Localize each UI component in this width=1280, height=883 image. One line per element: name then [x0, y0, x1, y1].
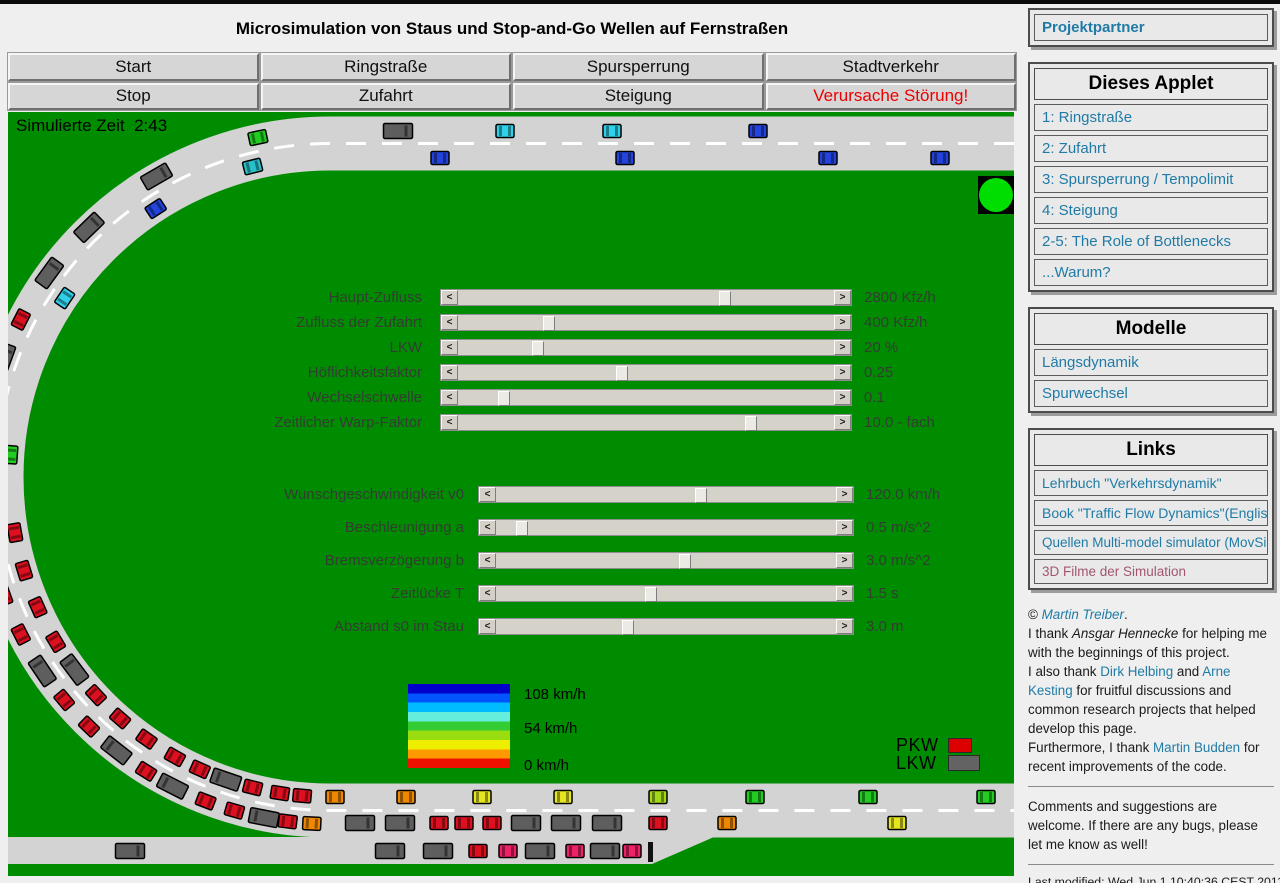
slider-thumb[interactable]	[695, 488, 707, 503]
truck-cab-line	[367, 818, 370, 829]
slider-h-flichkeitsfaktor[interactable]: <>	[440, 364, 852, 381]
slider-left-arrow[interactable]: <	[441, 365, 458, 380]
vehicle-body	[623, 845, 641, 858]
top-black-bar	[0, 0, 1280, 4]
slider-value: 0.1	[864, 389, 885, 406]
credit-text: .	[1124, 607, 1128, 622]
car-window	[822, 153, 825, 163]
slider-left-arrow[interactable]: <	[441, 340, 458, 355]
simulated-time-label: Simulierte Zeit 2:43	[16, 116, 167, 136]
button-start[interactable]: Start	[8, 53, 259, 81]
slider-left-arrow[interactable]: <	[441, 290, 458, 305]
truck-cab-line	[614, 818, 617, 829]
car-window	[989, 792, 992, 802]
slider-left-arrow[interactable]: <	[441, 315, 458, 330]
vehicle-car	[293, 789, 312, 804]
slider-row-haupt-zufluss: Haupt-Zufluss<>2800 Kfz/h	[8, 289, 936, 306]
credit-link-dirk-helbing[interactable]: Dirk Helbing	[1100, 664, 1173, 679]
slider-row-zufluss-der-zufahrt: Zufluss der Zufahrt<>400 Kfz/h	[8, 314, 936, 331]
car-window	[433, 818, 436, 828]
car-window	[730, 818, 733, 828]
car-window	[943, 153, 946, 163]
sidebar-link-quellen-multi-model-simulator-movsim[interactable]: Quellen Multi-model simulator (MovSim)	[1034, 530, 1268, 555]
vehicle-truck	[346, 816, 375, 831]
slider-row-zeitl-cke-t: Zeitlücke T<>1.5 s	[8, 585, 940, 602]
speed-legend-label: 108 km/h	[524, 686, 586, 703]
slider-wunschgeschwindigkeit-v0[interactable]: <>	[478, 486, 854, 503]
car-window	[626, 846, 629, 856]
car-window	[752, 126, 755, 136]
panel-links: LinksLehrbuch "Verkehrsdynamik"Book "Tra…	[1028, 428, 1274, 590]
car-window	[628, 153, 631, 163]
vehicle-body	[499, 845, 517, 858]
car-window	[499, 126, 502, 136]
sidebar-link-3d-filme-der-simulation[interactable]: 3D Filme der Simulation	[1034, 559, 1268, 584]
vehicle-car	[977, 791, 995, 804]
car-window	[615, 126, 618, 136]
car-window	[569, 846, 572, 856]
speed-gradient-box	[408, 684, 510, 768]
slider-right-arrow[interactable]: >	[836, 586, 853, 601]
vehicle-car	[326, 791, 344, 804]
slider-thumb[interactable]	[679, 554, 691, 569]
vehicle-car	[888, 817, 906, 830]
slider-right-arrow[interactable]: >	[836, 520, 853, 535]
car-window	[900, 818, 903, 828]
vehicle-body	[293, 789, 312, 804]
slider-thumb[interactable]	[532, 341, 544, 356]
vehicle-body	[270, 785, 290, 801]
car-window	[485, 792, 488, 802]
vehicle-truck	[386, 816, 415, 831]
slider-label: Wunschgeschwindigkeit v0	[8, 486, 464, 503]
button-spursperrung[interactable]: Spursperrung	[513, 53, 764, 81]
sidebar-link-2-zufahrt[interactable]: 2: Zufahrt	[1034, 135, 1268, 162]
vehicle-truck	[552, 816, 581, 831]
vehicle-body	[8, 445, 18, 464]
car-window	[606, 126, 609, 136]
vehicle-body	[591, 844, 620, 859]
slider-label: LKW	[8, 339, 422, 356]
car-window	[476, 792, 479, 802]
car-window	[862, 792, 865, 802]
page-title: Microsimulation von Staus und Stop-and-G…	[8, 19, 1016, 39]
vehicle-body	[469, 845, 487, 858]
slider-label: Höflichkeitsfaktor	[8, 364, 422, 381]
vehicle-body	[496, 125, 514, 138]
slider-label: Zufluss der Zufahrt	[8, 314, 422, 331]
slider-label: Zeitlicher Warp-Faktor	[8, 414, 422, 431]
slider-label: Bremsverzögerung b	[8, 552, 464, 569]
truck-cab-line	[137, 846, 140, 857]
slider-thumb[interactable]	[543, 316, 555, 331]
slider-right-arrow[interactable]: >	[834, 290, 851, 305]
slider-value: 20 %	[864, 339, 898, 356]
slider-right-arrow[interactable]: >	[834, 340, 851, 355]
vehicle-car	[649, 791, 667, 804]
vehicle-legend-row-lkw: LKW	[896, 754, 980, 772]
panel-dieses-applet: Dieses Applet1: Ringstraße2: Zufahrt3: S…	[1028, 62, 1274, 292]
slider-left-arrow[interactable]: <	[441, 390, 458, 405]
slider-left-arrow[interactable]: <	[479, 487, 496, 502]
vehicle-car	[473, 791, 491, 804]
car-window	[557, 792, 560, 802]
slider-right-arrow[interactable]: >	[836, 619, 853, 634]
credit-link-martin-budden[interactable]: Martin Budden	[1153, 740, 1240, 755]
slider-left-arrow[interactable]: <	[479, 553, 496, 568]
credit-text: I also thank	[1028, 664, 1100, 679]
vehicle-body	[593, 816, 622, 831]
vehicle-car	[431, 152, 449, 165]
panel-projektpartner: Projektpartner	[1028, 8, 1274, 47]
vehicle-body	[718, 817, 736, 830]
button-stop[interactable]: Stop	[8, 83, 259, 111]
car-window	[749, 792, 752, 802]
car-window	[443, 153, 446, 163]
vehicle-car	[746, 791, 764, 804]
vehicle-car	[603, 125, 621, 138]
vehicle-truck	[116, 844, 145, 859]
vehicle-body	[554, 791, 572, 804]
slider-group-traffic: Haupt-Zufluss<>2800 Kfz/hZufluss der Zuf…	[8, 289, 936, 439]
vehicle-body	[616, 152, 634, 165]
vehicle-body	[649, 791, 667, 804]
vehicle-legend-swatch	[948, 755, 980, 771]
sidebar-link-l-ngsdynamik[interactable]: Längsdynamik	[1034, 349, 1268, 376]
slider-row-wunschgeschwindigkeit-v0: Wunschgeschwindigkeit v0<>120.0 km/h	[8, 486, 940, 503]
vehicle-car	[270, 785, 290, 801]
vehicle-body	[483, 817, 501, 830]
vehicle-body	[526, 844, 555, 859]
car-window	[871, 792, 874, 802]
sidebar-panels: ProjektpartnerDieses Applet1: Ringstraße…	[1028, 8, 1274, 590]
vehicle-body	[859, 791, 877, 804]
vehicle-car	[566, 845, 584, 858]
vehicle-legend-label: LKW	[896, 753, 948, 774]
car-window	[508, 126, 511, 136]
slider-thumb[interactable]	[498, 391, 510, 406]
vehicle-body	[431, 152, 449, 165]
slider-value: 0.5 m/s^2	[866, 519, 931, 536]
slider-thumb[interactable]	[719, 291, 731, 306]
car-window	[306, 818, 310, 828]
car-window	[481, 846, 484, 856]
vehicle-body	[346, 816, 375, 831]
car-window	[511, 846, 514, 856]
vehicle-car	[455, 817, 473, 830]
car-window	[434, 153, 437, 163]
slider-right-arrow[interactable]: >	[834, 415, 851, 430]
slider-left-arrow[interactable]: <	[479, 586, 496, 601]
vehicle-body	[977, 791, 995, 804]
credit-text: Ansgar Hennecke	[1072, 626, 1178, 641]
control-button-grid: StartRingstraßeSpursperrungStadtverkehrS…	[8, 53, 1016, 110]
vehicle-car	[483, 817, 501, 830]
slider-bremsverz-gerung-b[interactable]: <>	[478, 552, 854, 569]
vehicle-car	[397, 791, 415, 804]
vehicle-body	[603, 125, 621, 138]
slider-lkw[interactable]: <>	[440, 339, 852, 356]
credit-text: and	[1173, 664, 1202, 679]
car-window	[467, 818, 470, 828]
slider-right-arrow[interactable]: >	[836, 553, 853, 568]
slider-left-arrow[interactable]: <	[479, 520, 496, 535]
panel-modelle: ModelleLängsdynamikSpurwechsel	[1028, 307, 1274, 413]
slider-label: Wechselschwelle	[8, 389, 422, 406]
button-stadtverkehr[interactable]: Stadtverkehr	[766, 53, 1017, 81]
car-window	[486, 818, 489, 828]
slider-row-beschleunigung-a: Beschleunigung a<>0.5 m/s^2	[8, 519, 940, 536]
slider-right-arrow[interactable]: >	[836, 487, 853, 502]
truck-cab-line	[445, 846, 448, 857]
car-window	[502, 846, 505, 856]
car-window	[495, 818, 498, 828]
slider-zeitl-cke-t[interactable]: <>	[478, 585, 854, 602]
slider-label: Zeitlücke T	[8, 585, 464, 602]
simulation-canvas: Simulierte Zeit 2:43 Haupt-Zufluss<>2800…	[8, 112, 1014, 876]
vehicle-truck	[424, 844, 453, 859]
vehicle-body	[888, 817, 906, 830]
vehicle-car	[616, 152, 634, 165]
vehicle-car	[819, 152, 837, 165]
slider-thumb[interactable]	[616, 366, 628, 381]
panel-title-modelle: Modelle	[1034, 313, 1268, 345]
slider-value: 400 Kfz/h	[864, 314, 927, 331]
vehicle-body	[384, 124, 413, 139]
vehicle-body	[512, 816, 541, 831]
sidebar-link-lehrbuch-verkehrsdynamik[interactable]: Lehrbuch "Verkehrsdynamik"	[1034, 470, 1268, 496]
sidebar-link-book-traffic-flow-dynamics-english[interactable]: Book "Traffic Flow Dynamics"(English)	[1034, 500, 1268, 526]
slider-right-arrow[interactable]: >	[834, 365, 851, 380]
car-window	[891, 818, 894, 828]
vehicle-truck	[384, 124, 413, 139]
slider-value: 3.0 m	[866, 618, 904, 635]
vehicle-car	[499, 845, 517, 858]
vehicle-body	[326, 791, 344, 804]
car-window	[458, 818, 461, 828]
button-zufahrt[interactable]: Zufahrt	[261, 83, 512, 111]
car-window	[619, 153, 622, 163]
car-window	[566, 792, 569, 802]
vehicle-car	[302, 817, 321, 831]
vehicle-body	[566, 845, 584, 858]
vehicle-car	[554, 791, 572, 804]
car-window	[578, 846, 581, 856]
vehicle-truck	[376, 844, 405, 859]
divider	[1028, 786, 1274, 787]
vehicle-car	[248, 129, 268, 145]
truck-cab-line	[407, 818, 410, 829]
slider-group-model: Wunschgeschwindigkeit v0<>120.0 km/hBesc…	[8, 486, 940, 651]
panel-title-dieses-applet: Dieses Applet	[1034, 68, 1268, 100]
button-verursache-st-rung[interactable]: Verursache Störung!	[766, 83, 1017, 111]
slider-wechselschwelle[interactable]: <>	[440, 389, 852, 406]
car-window	[661, 792, 664, 802]
slider-beschleunigung-a[interactable]: <>	[478, 519, 854, 536]
car-window	[635, 846, 638, 856]
button-steigung[interactable]: Steigung	[513, 83, 764, 111]
vehicle-body	[749, 125, 767, 138]
vehicle-car	[859, 791, 877, 804]
car-window	[721, 818, 724, 828]
vehicle-legend-swatch	[948, 738, 972, 753]
slider-label: Haupt-Zufluss	[8, 289, 422, 306]
vehicle-body	[248, 129, 268, 145]
truck-cab-line	[547, 846, 550, 857]
last-modified-label: Last modified: Wed Jun 1 10:40:36 CEST 2…	[1028, 875, 1274, 883]
sidebar-link-spurwechsel[interactable]: Spurwechsel	[1034, 380, 1268, 407]
car-window	[442, 818, 445, 828]
button-ringstra-e[interactable]: Ringstraße	[261, 53, 512, 81]
vehicle-car	[649, 817, 667, 830]
vehicle-car	[278, 814, 297, 829]
traffic-light-green	[979, 178, 1013, 212]
slider-row-bremsverz-gerung-b: Bremsverzögerung b<>3.0 m/s^2	[8, 552, 940, 569]
credit-text: I thank	[1028, 626, 1072, 641]
vehicle-body	[552, 816, 581, 831]
car-window	[329, 792, 332, 802]
vehicle-body	[931, 152, 949, 165]
vehicle-truck	[593, 816, 622, 831]
car-window	[761, 126, 764, 136]
applet-page: Microsimulation von Staus und Stop-and-G…	[0, 0, 1280, 883]
slider-row-lkw: LKW<>20 %	[8, 339, 936, 356]
truck-cab-line	[533, 818, 536, 829]
slider-row-h-flichkeitsfaktor: Höflichkeitsfaktor<>0.25	[8, 364, 936, 381]
vehicle-car	[931, 152, 949, 165]
sidebar-link-4-steigung[interactable]: 4: Steigung	[1034, 197, 1268, 224]
speed-color-legend: 108 km/h54 km/h0 km/h	[408, 684, 510, 768]
slider-thumb[interactable]	[516, 521, 528, 536]
vehicle-car	[8, 445, 18, 464]
slider-zufluss-der-zufahrt[interactable]: <>	[440, 314, 852, 331]
speed-legend-label: 54 km/h	[524, 720, 577, 737]
vehicle-car	[430, 817, 448, 830]
vehicle-body	[649, 817, 667, 830]
panel-title-links: Links	[1034, 434, 1268, 466]
vehicle-body	[302, 817, 321, 831]
slider-right-arrow[interactable]: >	[834, 315, 851, 330]
car-window	[661, 818, 664, 828]
vehicle-body	[473, 791, 491, 804]
vehicle-body	[746, 791, 764, 804]
slider-label: Abstand s0 im Stau	[8, 618, 464, 635]
sidebar: ProjektpartnerDieses Applet1: Ringstraße…	[1028, 8, 1274, 883]
vehicle-body	[819, 152, 837, 165]
slider-left-arrow[interactable]: <	[479, 619, 496, 634]
ramp-end-marker	[648, 842, 653, 862]
car-window	[934, 153, 937, 163]
slider-thumb[interactable]	[745, 416, 757, 431]
slider-haupt-zufluss[interactable]: <>	[440, 289, 852, 306]
credit-text: ©	[1028, 607, 1042, 622]
speed-legend-label: 0 km/h	[524, 757, 569, 774]
slider-row-abstand-s0-im-stau: Abstand s0 im Stau<>3.0 m	[8, 618, 940, 635]
vehicle-body	[455, 817, 473, 830]
slider-left-arrow[interactable]: <	[441, 415, 458, 430]
slider-value: 1.5 s	[866, 585, 899, 602]
slider-value: 3.0 m/s^2	[866, 552, 931, 569]
sidebar-link-3-spursperrung-tempolimit[interactable]: 3: Spursperrung / Tempolimit	[1034, 166, 1268, 193]
car-window	[758, 792, 761, 802]
sidebar-link-1-ringstra-e[interactable]: 1: Ringstraße	[1034, 104, 1268, 131]
truck-cab-line	[573, 818, 576, 829]
slider-thumb[interactable]	[645, 587, 657, 602]
truck-cab-line	[405, 126, 408, 137]
car-window	[652, 818, 655, 828]
car-window	[338, 792, 341, 802]
comments-note: Comments and suggestions are welcome. If…	[1028, 797, 1274, 854]
car-window	[652, 792, 655, 802]
vehicle-body	[278, 814, 297, 829]
slider-abstand-s0-im-stau[interactable]: <>	[478, 618, 854, 635]
vehicle-truck	[512, 816, 541, 831]
vehicle-body	[116, 844, 145, 859]
slider-value: 10.0 - fach	[864, 414, 935, 431]
car-window	[472, 846, 475, 856]
car-window	[980, 792, 983, 802]
sidebar-link-projektpartner[interactable]: Projektpartner	[1034, 14, 1268, 41]
truck-cab-line	[612, 846, 615, 857]
vehicle-legend-row-pkw: PKW	[896, 736, 980, 754]
car-window	[409, 792, 412, 802]
slider-value: 0.25	[864, 364, 893, 381]
vehicle-truck	[526, 844, 555, 859]
slider-zeitlicher-warp-faktor[interactable]: <>	[440, 414, 852, 431]
vehicle-body	[430, 817, 448, 830]
vehicle-car	[469, 845, 487, 858]
vehicle-body	[424, 844, 453, 859]
vehicle-car	[718, 817, 736, 830]
car-window	[400, 792, 403, 802]
vehicle-truck	[591, 844, 620, 859]
credits-text: © Martin Treiber.I thank Ansgar Hennecke…	[1028, 605, 1274, 776]
slider-value: 2800 Kfz/h	[864, 289, 936, 306]
slider-value: 120.0 km/h	[866, 486, 940, 503]
vehicle-body	[386, 816, 415, 831]
sidebar-link-warum[interactable]: ...Warum?	[1034, 259, 1268, 286]
truck-cab-line	[397, 846, 400, 857]
car-window	[831, 153, 834, 163]
credit-link-martin-treiber[interactable]: Martin Treiber	[1042, 607, 1124, 622]
vehicle-body	[397, 791, 415, 804]
vehicle-body	[376, 844, 405, 859]
slider-label: Beschleunigung a	[8, 519, 464, 536]
vehicle-type-legend: PKWLKW	[896, 736, 980, 772]
car-window	[315, 819, 319, 829]
vehicle-car	[623, 845, 641, 858]
sidebar-link-2-5-the-role-of-bottlenecks[interactable]: 2-5: The Role of Bottlenecks	[1034, 228, 1268, 255]
slider-thumb[interactable]	[622, 620, 634, 635]
credit-text: Furthermore, I thank	[1028, 740, 1153, 755]
divider	[1028, 864, 1274, 865]
vehicle-car	[749, 125, 767, 138]
slider-row-wechselschwelle: Wechselschwelle<>0.1	[8, 389, 936, 406]
slider-row-zeitlicher-warp-faktor: Zeitlicher Warp-Faktor<>10.0 - fach	[8, 414, 936, 431]
slider-right-arrow[interactable]: >	[834, 390, 851, 405]
vehicle-car	[496, 125, 514, 138]
